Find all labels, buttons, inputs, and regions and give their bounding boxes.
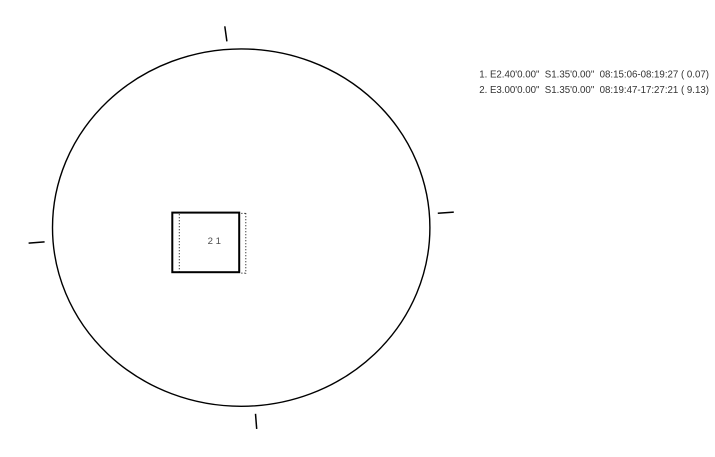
svg-text:2. E3.00'0.00" S1.35'0.00" 0: 2. E3.00'0.00" S1.35'0.00" 08:19:47-17:2… [479,85,709,96]
svg-text:2 1: 2 1 [208,236,221,247]
svg-text:1. E2.40'0.00" S1.35'0.00" 0: 1. E2.40'0.00" S1.35'0.00" 08:15:06-08:1… [479,70,709,81]
